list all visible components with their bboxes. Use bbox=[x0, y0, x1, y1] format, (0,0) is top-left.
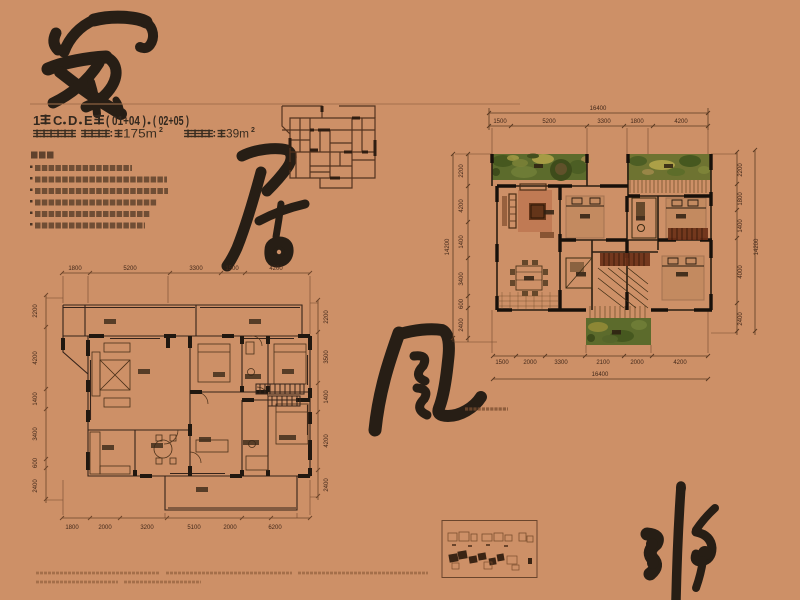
svg-text:14200: 14200 bbox=[445, 238, 451, 255]
svg-text:2200: 2200 bbox=[33, 304, 39, 318]
svg-text:1800: 1800 bbox=[738, 192, 744, 206]
svg-text:1500: 1500 bbox=[225, 266, 239, 272]
svg-text:2: 2 bbox=[251, 127, 255, 134]
svg-text:4200: 4200 bbox=[324, 434, 330, 448]
svg-text:1500: 1500 bbox=[493, 119, 507, 125]
svg-text:2400: 2400 bbox=[738, 312, 744, 326]
svg-text:3400: 3400 bbox=[33, 427, 39, 441]
svg-text:( 02+05 ): ( 02+05 ) bbox=[153, 113, 189, 128]
svg-text:14200: 14200 bbox=[754, 238, 760, 255]
svg-text:1: 1 bbox=[33, 113, 40, 128]
svg-text:175m: 175m bbox=[123, 127, 157, 141]
svg-text:5200: 5200 bbox=[542, 119, 556, 125]
svg-text:1400: 1400 bbox=[324, 390, 330, 404]
svg-text:1400: 1400 bbox=[459, 235, 465, 249]
svg-text:4200: 4200 bbox=[269, 266, 283, 272]
svg-text:1800: 1800 bbox=[65, 525, 79, 531]
svg-text:39m: 39m bbox=[226, 127, 249, 141]
svg-text:2400: 2400 bbox=[33, 479, 39, 493]
svg-text:4200: 4200 bbox=[33, 351, 39, 365]
svg-text:E: E bbox=[84, 113, 93, 128]
svg-text:1500: 1500 bbox=[495, 360, 509, 366]
svg-text:D: D bbox=[68, 113, 77, 128]
svg-text:4200: 4200 bbox=[674, 119, 688, 125]
svg-text:C: C bbox=[53, 113, 63, 128]
svg-text:1400: 1400 bbox=[33, 392, 39, 406]
svg-text:5200: 5200 bbox=[123, 266, 137, 272]
svg-text:2400: 2400 bbox=[459, 318, 465, 332]
svg-text:1400: 1400 bbox=[738, 219, 744, 233]
svg-text:6200: 6200 bbox=[268, 525, 282, 531]
svg-text:2000: 2000 bbox=[523, 360, 537, 366]
svg-text:2200: 2200 bbox=[738, 163, 744, 177]
svg-text:3300: 3300 bbox=[597, 119, 611, 125]
svg-text:5100: 5100 bbox=[187, 525, 201, 531]
svg-text:2000: 2000 bbox=[98, 525, 112, 531]
svg-text:1800: 1800 bbox=[630, 119, 644, 125]
svg-text:2200: 2200 bbox=[324, 310, 330, 324]
svg-text:600: 600 bbox=[33, 457, 39, 468]
svg-text:600: 600 bbox=[459, 298, 465, 309]
svg-text:16400: 16400 bbox=[590, 106, 607, 112]
svg-text:4200: 4200 bbox=[673, 360, 687, 366]
svg-text:2400: 2400 bbox=[324, 478, 330, 492]
svg-text:16400: 16400 bbox=[592, 372, 609, 378]
svg-text:4000: 4000 bbox=[738, 265, 744, 279]
svg-text:3400: 3400 bbox=[459, 272, 465, 286]
svg-text:2000: 2000 bbox=[630, 360, 644, 366]
svg-text:3500: 3500 bbox=[324, 350, 330, 364]
svg-text:2100: 2100 bbox=[596, 360, 610, 366]
svg-text:2000: 2000 bbox=[223, 525, 237, 531]
svg-text:1800: 1800 bbox=[68, 266, 82, 272]
svg-text:3300: 3300 bbox=[189, 266, 203, 272]
svg-text:3200: 3200 bbox=[140, 525, 154, 531]
svg-text:3300: 3300 bbox=[554, 360, 568, 366]
svg-text:2: 2 bbox=[159, 127, 163, 134]
svg-text:2200: 2200 bbox=[459, 164, 465, 178]
svg-text:4200: 4200 bbox=[459, 199, 465, 213]
